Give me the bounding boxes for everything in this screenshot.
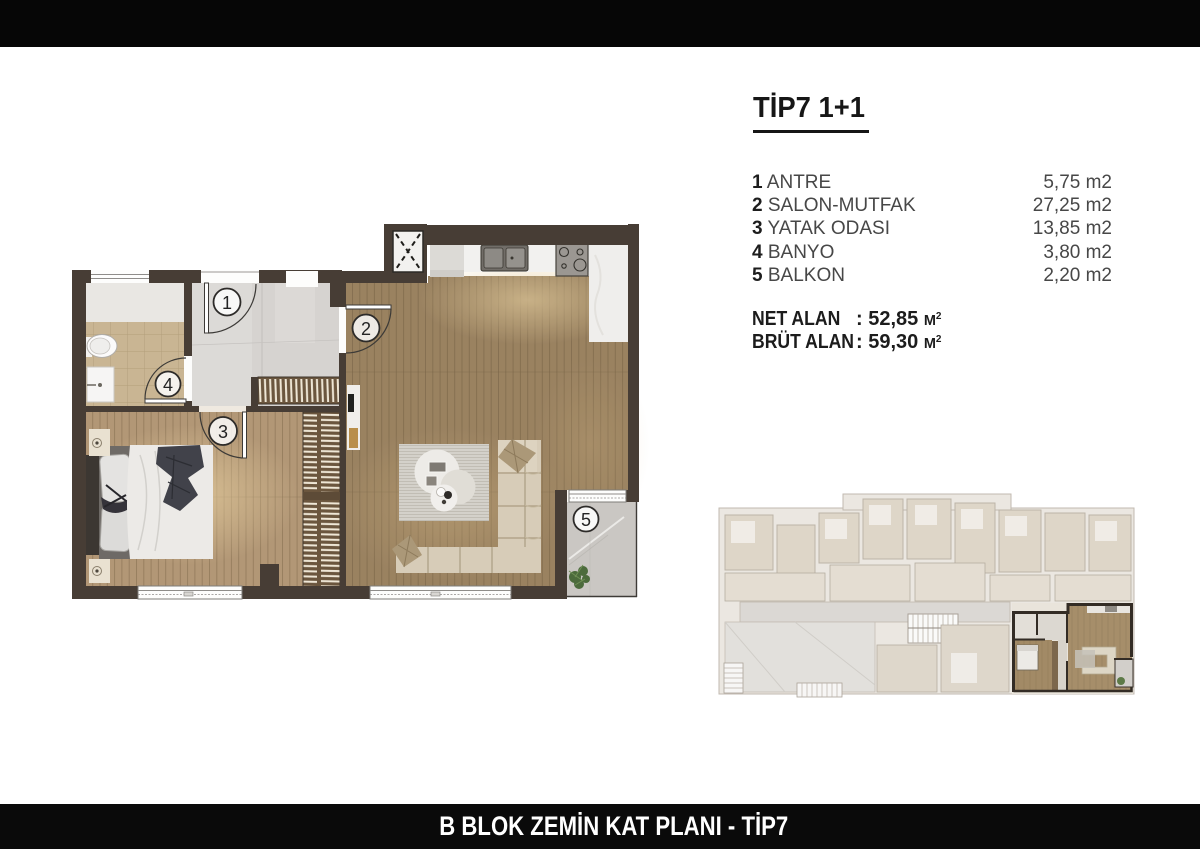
svg-text:2: 2 <box>361 319 371 339</box>
svg-text:4: 4 <box>163 375 173 395</box>
svg-text:5: 5 <box>581 510 591 530</box>
svg-text:1: 1 <box>222 293 232 313</box>
svg-text:3: 3 <box>218 422 228 442</box>
